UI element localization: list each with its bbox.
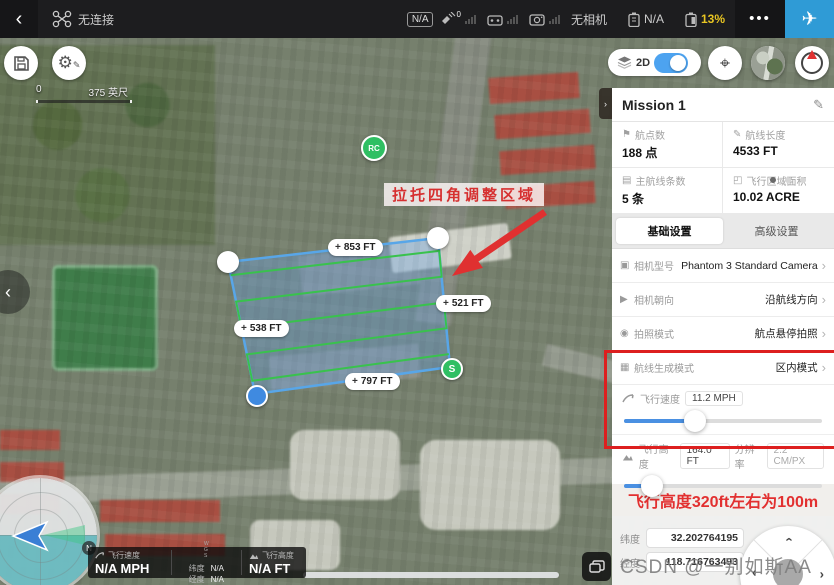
home-indicator[interactable] bbox=[303, 572, 559, 578]
rc-signal-bars bbox=[507, 15, 518, 24]
map-type-button[interactable] bbox=[751, 46, 785, 80]
watermark: CSDN @一别如斯AA bbox=[598, 552, 834, 579]
tutorial-annotation: 拉托四角调整区域 bbox=[384, 183, 544, 206]
hud-speed-label: 飞行速度 bbox=[108, 550, 140, 561]
mission-stats: ⚑航点数 188 点 ✎航线长度 4533 FT ▤主航线条数 5 条 ◰飞行区… bbox=[612, 122, 834, 214]
hud-alt-value: N/A FT bbox=[249, 561, 299, 576]
attitude-symbols bbox=[0, 478, 97, 585]
aircraft-battery-icon bbox=[628, 12, 640, 27]
camera-fov-wedge bbox=[43, 525, 85, 545]
speed-slider[interactable] bbox=[624, 410, 822, 432]
altitude-slider-thumb[interactable] bbox=[641, 475, 663, 497]
satellite-icon bbox=[440, 12, 456, 26]
tab-basic-settings[interactable]: 基础设置 bbox=[616, 218, 723, 244]
route-mode-icon: ▦ bbox=[620, 362, 634, 373]
nudge-up-button[interactable]: › bbox=[781, 537, 796, 541]
setting-capture-mode[interactable]: ◉ 拍照模式 航点悬停拍照 › bbox=[612, 317, 834, 351]
takeoff-button[interactable]: ✈ bbox=[785, 0, 834, 38]
hud-alt-label: 飞行高度 bbox=[262, 550, 294, 561]
waypoint-icon: ⚑ bbox=[622, 129, 631, 140]
speed-value-field[interactable]: 11.2 MPH bbox=[685, 391, 743, 406]
shutter-icon: ◉ bbox=[620, 328, 634, 339]
locate-me-button[interactable]: ⌖ bbox=[708, 46, 742, 80]
drag-edge-icon: + bbox=[335, 242, 341, 253]
stat-area: ◰飞行区域面积 10.02 ACRE bbox=[723, 168, 834, 214]
stat-value: 5 条 bbox=[622, 190, 712, 207]
stats-page-dots[interactable] bbox=[770, 177, 806, 183]
edge-length-text: 538 FT bbox=[250, 323, 282, 334]
annotation-arrow bbox=[476, 212, 545, 259]
mission-settings-button[interactable]: ⚙✎ bbox=[52, 46, 86, 80]
chevron-right-icon: › bbox=[604, 99, 607, 109]
gear-pencil-icon: ⚙✎ bbox=[58, 53, 81, 73]
panel-collapse-button[interactable]: › bbox=[599, 88, 612, 119]
chevron-left-icon: ‹ bbox=[5, 282, 11, 303]
latitude-field[interactable] bbox=[646, 528, 744, 548]
setting-route-mode[interactable]: ▦ 航线生成模式 区内模式 › bbox=[612, 351, 834, 385]
airplane-icon: ✈ bbox=[802, 8, 818, 31]
stat-value: 10.02 ACRE bbox=[733, 190, 824, 204]
status-bar: ‹ 无连接 N/A 0 无相机 N/A bbox=[0, 0, 834, 38]
drone-icon bbox=[52, 10, 72, 28]
minimap-icon bbox=[751, 46, 785, 80]
polygon-corner-handle[interactable] bbox=[246, 385, 268, 407]
flight-mode-badge: N/A bbox=[407, 12, 434, 27]
telemetry-bar: 飞行速度 N/A MPH WGS 纬度N/A 经度N/A 飞行高度 N/A FT bbox=[88, 547, 306, 578]
stat-value: 4533 FT bbox=[733, 144, 824, 158]
hud-speed-value: N/A MPH bbox=[95, 561, 164, 576]
edge-length-label[interactable]: + 797 FT bbox=[345, 373, 400, 390]
device-battery-value: 13% bbox=[701, 12, 725, 26]
stat-main-lines: ▤主航线条数 5 条 bbox=[612, 168, 723, 214]
back-button[interactable]: ‹ bbox=[0, 0, 38, 38]
compass-reset-button[interactable] bbox=[795, 46, 829, 80]
camera-icon: ▣ bbox=[620, 260, 634, 271]
mode-toggle-switch[interactable] bbox=[654, 53, 688, 73]
device-battery-icon bbox=[685, 12, 697, 27]
setting-camera-heading[interactable]: ▶ 相机朝向 沿航线方向 › bbox=[612, 283, 834, 317]
polygon-corner-handle[interactable] bbox=[217, 251, 239, 273]
layers-icon bbox=[617, 56, 632, 69]
rc-location-marker: RC bbox=[361, 135, 387, 161]
drag-edge-icon: + bbox=[443, 298, 449, 309]
aircraft-battery-value: N/A bbox=[644, 12, 664, 26]
map-scale-bar: 0 375 英尺 bbox=[36, 84, 132, 103]
altitude-slider-row: 飞行高度 164.0 FT 分辨率 2.2 CM/PX bbox=[612, 434, 834, 484]
lines-count-icon: ▤ bbox=[622, 175, 631, 186]
stat-value: 188 点 bbox=[622, 144, 712, 161]
app-root: S + 853 FT + 521 FT + 538 FT + 797 FT 拉托… bbox=[0, 0, 834, 585]
map-mode-label: 2D bbox=[636, 57, 650, 69]
map-mode-pill[interactable]: 2D bbox=[608, 49, 701, 76]
edge-length-text: 797 FT bbox=[361, 376, 393, 387]
tab-advanced-settings[interactable]: 高级设置 bbox=[723, 218, 830, 244]
chevron-right-icon: › bbox=[822, 326, 826, 341]
north-needle-icon bbox=[807, 50, 817, 59]
edge-length-text: 521 FT bbox=[452, 298, 484, 309]
mission-header: Mission 1 ✎ bbox=[612, 88, 834, 122]
connection-status: 无连接 bbox=[78, 11, 114, 28]
speed-icon bbox=[622, 393, 635, 404]
save-icon bbox=[13, 55, 30, 72]
camera-status: 无相机 bbox=[571, 11, 607, 28]
edit-mission-icon[interactable]: ✎ bbox=[813, 97, 824, 113]
edge-length-text: 853 FT bbox=[344, 242, 376, 253]
gps-satellite-icon[interactable]: 0 bbox=[440, 12, 479, 26]
camera-signal-icon[interactable] bbox=[529, 13, 564, 26]
route-length-icon: ✎ bbox=[733, 129, 741, 140]
aircraft-battery[interactable]: N/A bbox=[628, 12, 664, 27]
speed-slider-row: 飞行速度 11.2 MPH bbox=[612, 385, 834, 434]
gps-count: 0 bbox=[456, 10, 460, 19]
latitude-label: 纬度 bbox=[620, 531, 646, 546]
route-start-marker[interactable]: S bbox=[441, 358, 463, 380]
speed-slider-thumb[interactable] bbox=[684, 410, 706, 432]
altitude-value-field[interactable]: 164.0 FT bbox=[680, 443, 730, 469]
altitude-slider[interactable] bbox=[624, 475, 822, 497]
remote-controller-icon[interactable] bbox=[487, 13, 522, 26]
gps-signal-bars bbox=[465, 15, 476, 24]
speed-icon bbox=[95, 551, 105, 560]
toggle-knob bbox=[670, 55, 686, 71]
setting-camera-model[interactable]: ▣ 相机型号 Phantom 3 Standard Camera › bbox=[612, 249, 834, 283]
heading-icon: ▶ bbox=[620, 294, 634, 305]
scale-zero: 0 bbox=[36, 84, 42, 99]
camera-icon bbox=[529, 13, 545, 26]
crosshair-icon: ⌖ bbox=[720, 53, 730, 74]
stat-route-length: ✎航线长度 4533 FT bbox=[723, 122, 834, 168]
stat-waypoints: ⚑航点数 188 点 bbox=[612, 122, 723, 168]
settings-tabs: 基础设置 高级设置 bbox=[612, 214, 834, 249]
polygon-corner-handle[interactable] bbox=[427, 227, 449, 249]
rc-icon bbox=[487, 13, 503, 26]
camera-signal-bars bbox=[549, 15, 560, 24]
more-menu-button[interactable]: ••• bbox=[735, 0, 785, 38]
chevron-right-icon: › bbox=[822, 292, 826, 307]
drag-edge-icon: + bbox=[241, 323, 247, 334]
chevron-right-icon: › bbox=[822, 258, 826, 273]
mission-panel: › Mission 1 ✎ ⚑航点数 188 点 ✎航线长度 4533 FT ▤… bbox=[612, 88, 834, 585]
altitude-icon bbox=[249, 551, 259, 560]
chevron-left-icon: ‹ bbox=[16, 8, 23, 31]
mission-title: Mission 1 bbox=[622, 97, 686, 113]
chevron-right-icon: › bbox=[822, 360, 826, 375]
scale-distance: 375 英尺 bbox=[89, 84, 128, 99]
altitude-icon bbox=[622, 451, 634, 462]
resolution-label: 分辨率 bbox=[735, 441, 762, 471]
save-mission-button[interactable] bbox=[4, 46, 38, 80]
edge-length-label[interactable]: + 521 FT bbox=[436, 295, 491, 312]
attitude-compass-instrument[interactable] bbox=[0, 478, 97, 585]
edge-length-label[interactable]: + 538 FT bbox=[234, 320, 289, 337]
edge-length-label[interactable]: + 853 FT bbox=[328, 239, 383, 256]
resolution-value: 2.2 CM/PX bbox=[767, 443, 824, 469]
area-icon: ◰ bbox=[733, 175, 742, 186]
drag-edge-icon: + bbox=[352, 376, 358, 387]
aircraft-arrow-icon bbox=[13, 522, 47, 550]
datum-label: WGS bbox=[204, 541, 209, 559]
device-battery[interactable]: 13% bbox=[685, 12, 725, 27]
